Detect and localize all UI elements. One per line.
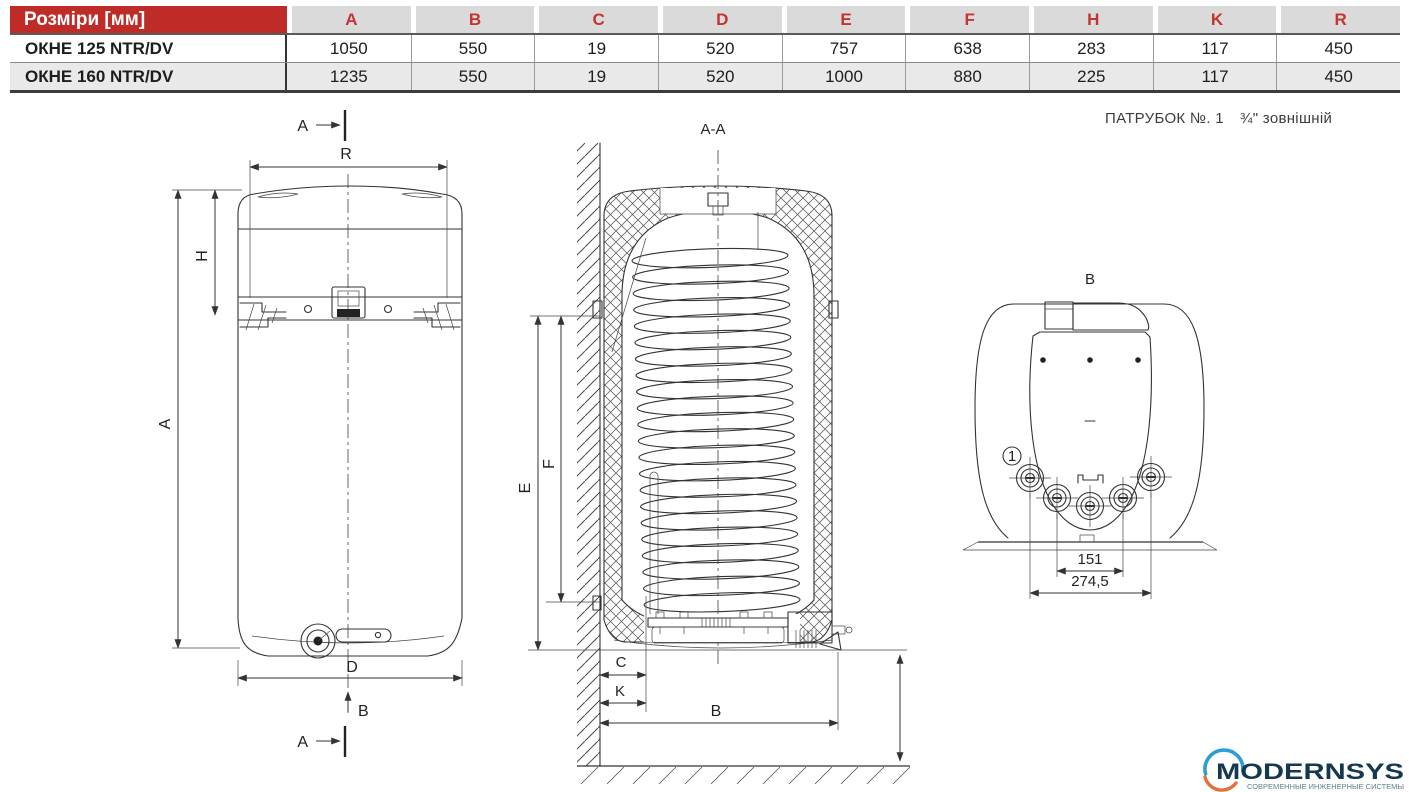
control-knob [301,624,335,658]
bottom-view-drawing: B 1 [963,271,1217,599]
bottom-view-title: B [1085,271,1095,288]
front-view-drawing: A [157,110,462,757]
dim-151: 151 [1077,551,1102,568]
logo-wordmark: MODERNSYS [1216,759,1404,784]
modernsys-logo: MODERNSYS СОВРЕМЕННЫЕ ИНЖЕНЕРНЫЕ СИСТЕМЫ [1205,750,1404,791]
dim-274-5: 274,5 [1071,573,1109,590]
logo-tagline: СОВРЕМЕННЫЕ ИНЖЕНЕРНЫЕ СИСТЕМЫ [1247,782,1404,791]
dim-label-c: C [616,654,627,671]
section-mark-bottom-label: A [297,734,308,751]
technical-drawing: A [0,0,1409,792]
heat-exchanger-coil [632,246,801,614]
dim-label-d: D [346,659,358,676]
dim-label-h: H [194,250,211,262]
section-mark-top-label: A [297,118,308,135]
dim-label-b-front: B [358,703,369,720]
spec-sheet-page: Розміри [мм] A B C D E F H K R ОКНЕ 125 … [0,0,1409,792]
section-title: A-A [700,121,725,138]
ground-hatch [581,767,910,784]
port-outer-right [1130,456,1172,498]
dim-label-a: A [157,418,174,429]
port-center [1069,485,1111,527]
cable-entry-box [1045,302,1073,329]
dim-label-f: F [541,459,558,469]
handle-recess [336,629,391,642]
wall-hatch [577,143,600,766]
dim-label-e: E [517,483,534,494]
dim-label-r: R [340,146,352,163]
dim-label-k: K [615,683,625,700]
callout-number: 1 [1008,448,1016,465]
cross-section-drawing: A-A [517,121,910,784]
dim-label-b-section: B [711,703,722,720]
